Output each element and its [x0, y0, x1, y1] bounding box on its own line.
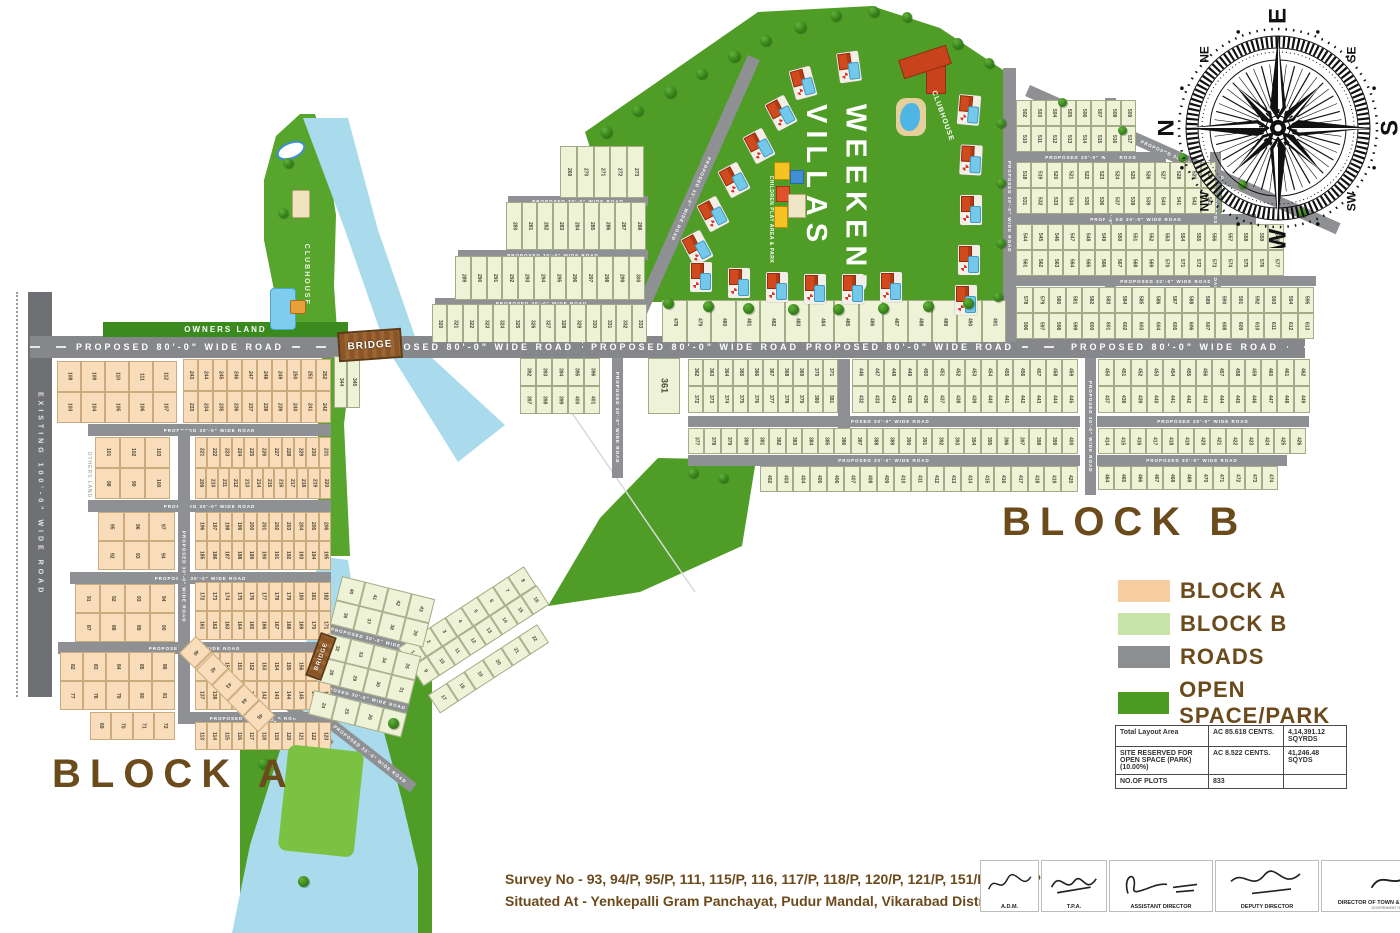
plot: 449 — [900, 359, 916, 386]
road-label: PROPOSED 30'-0" WIDE ROAD — [155, 576, 246, 581]
tree-icon — [868, 6, 879, 17]
compass-intercardinal-NW: NW — [1197, 191, 1211, 212]
plot: 85 — [129, 652, 152, 681]
road: PROPOSED 30'-0" WIDE ROAD — [688, 455, 1080, 466]
table-row: SITE RESERVED FOR OPEN SPACE (PARK)(10.0… — [1116, 747, 1347, 775]
plot: 377 — [763, 386, 778, 413]
umbrella-icon — [845, 294, 851, 300]
plot-band: 289290291292293294295296297298299300 — [455, 256, 645, 300]
umbrella-icon — [961, 265, 967, 271]
tree-icon — [388, 718, 399, 729]
villa-pool — [700, 273, 711, 290]
plot: 506 — [1076, 100, 1091, 126]
road-label: PROPOSED 30'-0" WIDE ROAD — [1157, 419, 1248, 424]
plot-band: 5615625635645655665675685695705715725735… — [1016, 250, 1284, 276]
plot: 598 — [1049, 313, 1066, 339]
plot: 197 — [207, 512, 219, 541]
plot: 422 — [1226, 428, 1242, 454]
plot: 71 — [133, 712, 154, 740]
plot: 456 — [1013, 359, 1029, 386]
plot: 441 — [997, 386, 1013, 413]
plot: 609 — [1231, 313, 1248, 339]
table-row: NO.OF PLOTS 833 — [1116, 775, 1347, 789]
plot: 109 — [81, 361, 105, 392]
plot: 566 — [1095, 250, 1111, 276]
plot: 186 — [207, 541, 219, 570]
plot: 597 — [1033, 313, 1050, 339]
tree-icon — [996, 178, 1006, 188]
plot: 271 — [594, 146, 611, 198]
plot: 411 — [911, 466, 928, 492]
plot: 591 — [1231, 287, 1248, 313]
plot: 424 — [1258, 428, 1274, 454]
table-cell: Total Layout Area — [1116, 726, 1209, 747]
plot: 573 — [1205, 250, 1221, 276]
tree-icon — [963, 298, 974, 309]
villa-pool — [738, 279, 749, 296]
plot: 234 — [198, 391, 213, 423]
compass-intercardinal-SE: SE — [1345, 46, 1359, 62]
plot: 579 — [1033, 287, 1050, 313]
signature-scribble — [1116, 862, 1206, 904]
tree-icon — [794, 21, 806, 33]
plot: 295 — [550, 256, 566, 300]
plot: 453 — [1147, 359, 1163, 386]
plot-band: 959697 — [98, 512, 175, 541]
plot-band: 344345 — [334, 356, 360, 408]
plot: 468 — [1163, 466, 1179, 490]
plot: 524 — [1108, 162, 1123, 188]
bridge-label: BRIDGE — [347, 338, 393, 352]
plot: 578 — [1016, 287, 1033, 313]
plot: 415 — [1114, 428, 1130, 454]
plot: 200 — [244, 512, 256, 541]
tree-icon — [600, 126, 612, 138]
plot: 525 — [1124, 162, 1139, 188]
road: PROPOSED 30'-0" WIDE ROAD — [1016, 276, 1316, 286]
plot-band: 161162163164165166167168169170171 — [195, 611, 331, 640]
plot: 438 — [1114, 386, 1130, 413]
plot: 365 — [733, 359, 748, 386]
plot: 417 — [1146, 428, 1162, 454]
signature-strip: A.D.M. T.P.A. ASSISTANT DIRECTOR DEPUTY … — [980, 860, 1398, 912]
plot-band: 280281282283284285286287288 — [506, 202, 646, 250]
tree-icon — [688, 468, 698, 478]
plot: 513 — [1061, 126, 1076, 152]
plot: 90 — [150, 613, 175, 642]
plot: 152 — [244, 652, 256, 681]
plot: 443 — [1030, 386, 1046, 413]
plot-band: 209210211212213214215216217218219220 — [195, 468, 331, 499]
plot: 419 — [1178, 428, 1194, 454]
plot: 378 — [778, 386, 793, 413]
plot: 444 — [1046, 386, 1062, 413]
plot: 72 — [154, 712, 175, 740]
compass-rose: NESWNESESWNW — [1158, 8, 1398, 248]
plot: 229 — [294, 437, 306, 468]
plot: 399 — [552, 386, 568, 414]
plot: 227 — [269, 437, 281, 468]
plot: 297 — [582, 256, 598, 300]
signature-scribble — [1222, 862, 1312, 904]
plot: 567 — [1111, 250, 1127, 276]
plot: 394 — [964, 428, 980, 454]
plot: 108 — [57, 361, 81, 392]
tree-icon — [696, 68, 707, 79]
plot: 251 — [301, 359, 316, 391]
plot: 590 — [1215, 287, 1232, 313]
plot: 458 — [1229, 359, 1245, 386]
plot: 565 — [1079, 250, 1095, 276]
table-cell: NO.OF PLOTS — [1116, 775, 1209, 789]
plot: 404 — [793, 466, 810, 492]
plot: 596 — [1016, 313, 1033, 339]
plot: 111 — [129, 361, 153, 392]
plot: 173 — [207, 582, 219, 611]
plot: 602 — [1115, 313, 1132, 339]
plot: 472 — [1229, 466, 1245, 490]
plot: 218 — [297, 468, 308, 499]
plot: 244 — [198, 359, 213, 391]
plot: 518 — [1016, 162, 1031, 188]
plot: 574 — [1221, 250, 1237, 276]
plot-band: 196197198199200201202203204205206 — [195, 512, 331, 541]
plot: 79 — [106, 681, 129, 710]
plot: 104 — [81, 392, 105, 423]
plot: 88 — [100, 613, 125, 642]
plot: 203 — [282, 512, 294, 541]
bridge-1: BRIDGE — [337, 328, 403, 362]
plot: 92 — [100, 584, 125, 613]
plot: 364 — [718, 359, 733, 386]
villa-icon — [960, 195, 982, 225]
plot: 367 — [763, 359, 778, 386]
plot-band: 464465466467468469470471472473474 — [1098, 466, 1278, 490]
plot-band: 4024034044054064074084094104114124134144… — [760, 466, 1078, 492]
plot: 484 — [809, 300, 834, 344]
plot: 248 — [257, 359, 272, 391]
road: PROPOSED 30'-0" WIDE ROAD — [612, 358, 623, 478]
plot: 290 — [471, 256, 487, 300]
plot: 401 — [584, 386, 600, 414]
plot: 119 — [269, 722, 281, 750]
plot: 398 — [1029, 428, 1045, 454]
umbrella-icon — [883, 292, 889, 298]
plot-band: 172173174175176177178179180181182 — [195, 582, 331, 611]
plot: 459 — [1062, 359, 1078, 386]
plot: 222 — [207, 437, 219, 468]
plot: 361 — [648, 358, 680, 414]
plot: 286 — [599, 202, 615, 250]
plot: 362 — [688, 359, 703, 386]
plot: 379 — [793, 386, 808, 413]
plot: 439 — [965, 386, 981, 413]
plot: 420 — [1194, 428, 1210, 454]
plot: 282 — [537, 202, 553, 250]
plot: 214 — [252, 468, 263, 499]
plot: 238 — [257, 391, 272, 423]
plot: 599 — [1066, 313, 1083, 339]
plot-band: 185186187188189190191192193194195 — [195, 541, 331, 570]
tree-icon — [278, 208, 288, 218]
tree-icon — [718, 473, 728, 483]
plot: 175 — [232, 582, 244, 611]
plot: 508 — [1106, 100, 1121, 126]
plot: 172 — [195, 582, 207, 611]
plot: 320 — [432, 304, 447, 344]
plot: 435 — [900, 386, 916, 413]
plot: 240 — [287, 391, 302, 423]
plot: 296 — [566, 256, 582, 300]
plot-band: 108109110111112 — [57, 361, 177, 392]
existing-road-label: EXISTING 100'-0" WIDE ROAD — [37, 392, 44, 596]
plot: 452 — [949, 359, 965, 386]
owners-land-strip: OWNERS LAND — [103, 322, 348, 337]
plot: 389 — [883, 428, 899, 454]
plot: 403 — [777, 466, 794, 492]
plot: 385 — [818, 428, 834, 454]
plot: 457 — [1030, 359, 1046, 386]
plot: 392 — [932, 428, 948, 454]
plot: 368 — [778, 359, 793, 386]
plot: 536 — [1093, 188, 1108, 214]
plot: 519 — [1031, 162, 1046, 188]
plot: 89 — [125, 613, 150, 642]
plot: 460 — [1261, 359, 1277, 386]
plot: 447 — [868, 359, 884, 386]
legend-label: ROADS — [1180, 644, 1264, 670]
plot: 77 — [60, 681, 83, 710]
plot: 293 — [518, 256, 534, 300]
plot: 376 — [748, 386, 763, 413]
plot: 571 — [1174, 250, 1190, 276]
plot: 612 — [1281, 313, 1298, 339]
plot: 169 — [294, 611, 306, 640]
plot: 247 — [242, 359, 257, 391]
road-label: PROPOSED 30'-0" WIDE ROAD — [1007, 161, 1012, 252]
plot: 380 — [808, 386, 823, 413]
umbrella-icon — [769, 292, 775, 298]
road-label: PROPOSED 30'-0" WIDE ROAD — [838, 458, 929, 463]
road: PROPOSED 30'-0" WIDE ROAD — [1085, 358, 1096, 495]
plot-band: 4464474484494504514524534544554564574584… — [852, 359, 1078, 386]
villa-pool — [967, 106, 979, 124]
umbrella-icon — [842, 72, 849, 79]
road-label: PROPOSED 30'-0" WIDE ROAD — [1120, 279, 1211, 284]
plot: 482 — [760, 300, 785, 344]
plot: 397 — [1013, 428, 1029, 454]
plot-band: 372373374375376377378379380381 — [688, 386, 838, 413]
plot: 410 — [894, 466, 911, 492]
plot: 298 — [597, 256, 613, 300]
plot: 458 — [1046, 359, 1062, 386]
plot: 188 — [232, 541, 244, 570]
plot: 345 — [347, 356, 360, 408]
plot: 228 — [282, 437, 294, 468]
plot: 201 — [257, 512, 269, 541]
plot: 209 — [195, 468, 206, 499]
plot: 441 — [1163, 386, 1179, 413]
plot: 216 — [274, 468, 285, 499]
plot: 473 — [1245, 466, 1261, 490]
plot-band: 4324334344354364374384394404414424434444… — [852, 386, 1078, 413]
umbrella-icon — [960, 114, 967, 121]
plot: 601 — [1099, 313, 1116, 339]
plot: 92 — [98, 541, 124, 570]
plot: 100 — [145, 468, 170, 499]
plot: 572 — [1189, 250, 1205, 276]
plot: 93 — [125, 584, 150, 613]
plot: 285 — [584, 202, 600, 250]
tree-icon — [298, 876, 309, 887]
plot: 512 — [1046, 126, 1061, 152]
villa-icon — [957, 94, 982, 126]
plot: 194 — [306, 541, 318, 570]
plot: 552 — [1142, 224, 1158, 250]
plot: 467 — [1147, 466, 1163, 490]
plot: 245 — [213, 359, 228, 391]
plot: 587 — [1165, 287, 1182, 313]
plot: 223 — [220, 437, 232, 468]
plot: 206 — [319, 512, 331, 541]
plot: 329 — [570, 304, 585, 344]
plot: 331 — [601, 304, 616, 344]
plot: 425 — [1274, 428, 1290, 454]
plot: 447 — [1261, 386, 1277, 413]
umbrella-icon — [962, 165, 968, 171]
main-road-label: PROPOSED 80'-0" WIDE ROAD — [798, 342, 1022, 352]
plot: 526 — [1139, 162, 1154, 188]
plot: 330 — [586, 304, 601, 344]
signature-scribble — [985, 862, 1035, 904]
plot-band: 9899100 — [95, 468, 170, 499]
road: PROPOSED 30'-0" WIDE ROAD — [1097, 416, 1309, 427]
plot: 452 — [1131, 359, 1147, 386]
legend-item-block-b: BLOCK B — [1118, 611, 1400, 637]
plot: 91 — [75, 584, 100, 613]
plot: 471 — [1213, 466, 1229, 490]
plot: 445 — [1229, 386, 1245, 413]
umbrella-icon — [731, 288, 737, 294]
compass-intercardinal-SW: SW — [1345, 191, 1359, 211]
plot: 155 — [282, 652, 294, 681]
tree-icon — [830, 10, 841, 21]
plot: 322 — [463, 304, 478, 344]
road: PROPOSED 30'-0" WIDE ROAD — [88, 424, 331, 436]
plot: 436 — [917, 386, 933, 413]
plot: 457 — [1212, 359, 1228, 386]
plot: 270 — [577, 146, 594, 198]
plot: 396 — [584, 358, 600, 386]
main-road-label: PROPOSED 80'-0" WIDE ROAD — [583, 342, 807, 352]
plot: 181 — [306, 582, 318, 611]
plot: 231 — [319, 437, 331, 468]
plot: 163 — [220, 611, 232, 640]
tree-icon — [632, 105, 643, 116]
plot: 289 — [455, 256, 471, 300]
plot: 451 — [1114, 359, 1130, 386]
road: PROPOSED 30'-0" WIDE ROAD — [1097, 455, 1287, 466]
plot: 237 — [242, 391, 257, 423]
table-row: Total Layout Area AC 85.618 CENTS. 4,14,… — [1116, 726, 1347, 747]
layout-plan-canvas: EXISTING 100'-0" WIDE ROAD PROPOSED 80'-… — [0, 0, 1400, 933]
plot: 383 — [786, 428, 802, 454]
plot-band: 69707172 — [90, 712, 175, 740]
plot: 174 — [220, 582, 232, 611]
signature-scribble — [1331, 862, 1400, 900]
plot: 273 — [627, 146, 644, 198]
plot: 491 — [982, 300, 1007, 344]
plot: 409 — [877, 466, 894, 492]
table-cell: 4,14,391.12 SQYRDS — [1284, 726, 1347, 747]
plot: 393 — [536, 358, 552, 386]
plot-band: 450451452453454455456457458459460461462 — [1098, 359, 1310, 386]
plot-band: 87888990 — [75, 613, 175, 642]
villa-icon — [836, 51, 862, 84]
plot: 375 — [733, 386, 748, 413]
plot: 461 — [1277, 359, 1293, 386]
plot: 502 — [1016, 100, 1031, 126]
plot: 462 — [1294, 359, 1310, 386]
plot: 453 — [965, 359, 981, 386]
plot: 535 — [1078, 188, 1093, 214]
plot: 168 — [282, 611, 294, 640]
plot: 388 — [867, 428, 883, 454]
layout-summary-table: Total Layout Area AC 85.618 CENTS. 4,14,… — [1115, 725, 1347, 789]
plot: 176 — [244, 582, 256, 611]
plot: 93 — [124, 541, 150, 570]
umbrella-icon — [963, 215, 969, 221]
main-road-label: PROPOSED 80'-0" WIDE ROAD — [68, 342, 292, 352]
plot: 187 — [220, 541, 232, 570]
plot: 191 — [269, 541, 281, 570]
island-kids-illustration — [292, 190, 310, 218]
villa-pool — [968, 256, 979, 273]
villa-pool — [852, 285, 863, 302]
plot: 288 — [631, 202, 647, 250]
plot: 448 — [1277, 386, 1293, 413]
plot: 153 — [257, 652, 269, 681]
plot: 538 — [1124, 188, 1139, 214]
plot: 522 — [1078, 162, 1093, 188]
plot: 202 — [269, 512, 281, 541]
plot: 116 — [232, 722, 244, 750]
plot: 443 — [1196, 386, 1212, 413]
tree-icon — [283, 158, 293, 168]
plot: 369 — [793, 359, 808, 386]
plot: 405 — [810, 466, 827, 492]
plot-band: 929394 — [98, 541, 175, 570]
road-label: PROPOSED 30'-0" WIDE ROAD — [1146, 458, 1237, 463]
plot: 166 — [257, 611, 269, 640]
plot: 299 — [613, 256, 629, 300]
villa-icon — [880, 272, 902, 302]
plot: 212 — [229, 468, 240, 499]
plot: 144 — [282, 681, 294, 710]
plot: 145 — [294, 681, 306, 710]
plot: 480 — [711, 300, 736, 344]
plot: 408 — [860, 466, 877, 492]
plot-band: 269270271272273 — [560, 146, 644, 198]
plot: 407 — [844, 466, 861, 492]
plot: 78 — [83, 681, 106, 710]
compass-cardinal-N: N — [1158, 119, 1180, 136]
villa-icon — [842, 274, 864, 304]
legend-swatch-block-b — [1118, 613, 1170, 635]
others-land-label: OTHERS LAND — [80, 442, 98, 498]
umbrella-icon — [797, 88, 804, 95]
plot: 399 — [1046, 428, 1062, 454]
